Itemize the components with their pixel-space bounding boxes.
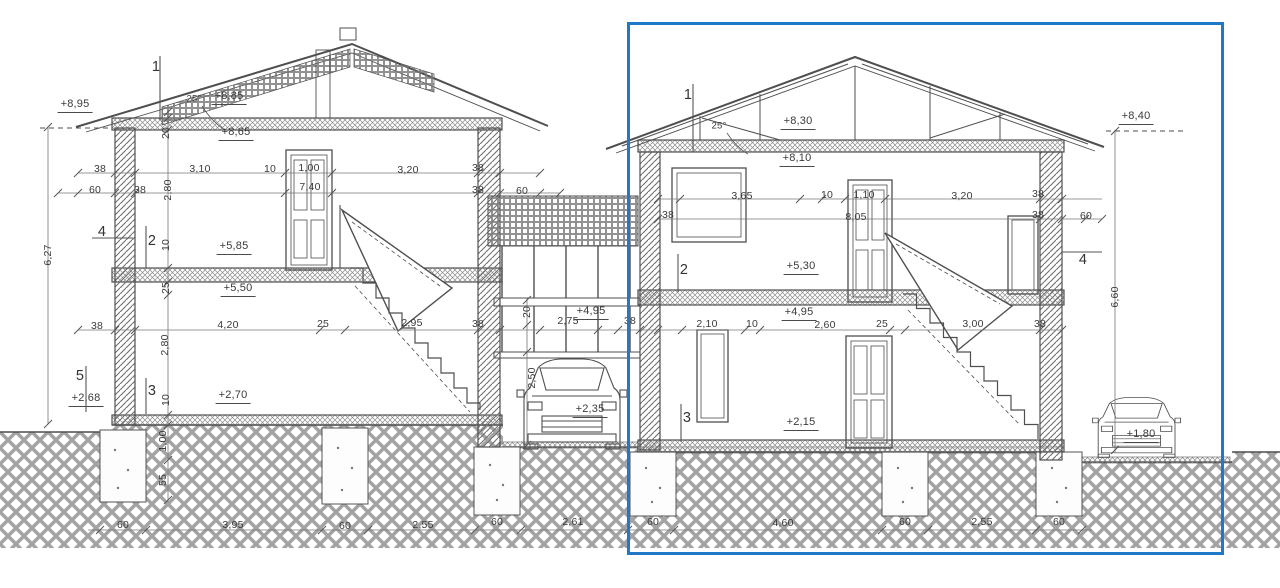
dimension-label: 3,95 [222, 520, 243, 531]
highlight-box [627, 22, 1224, 555]
dimension-label: 1,00 [298, 163, 319, 174]
section-marker: 3 [148, 384, 156, 399]
dimension-label-vertical: 1,00 [158, 430, 169, 451]
section-drawing: +8,95+8,85+8,65+5,85+5,50+2,70+2,68+4,95… [0, 0, 1280, 588]
dimension-label: 38 [472, 185, 484, 196]
dimension-label-vertical: 10 [161, 239, 172, 251]
section-marker: 2 [148, 234, 156, 249]
dimension-label-vertical: 20 [522, 306, 533, 318]
dimension-label: 25 [317, 319, 329, 330]
elevation-label: +2,68 [69, 393, 104, 407]
elevation-label: +5,85 [217, 241, 252, 255]
dimension-label: 38 [134, 185, 146, 196]
dimension-label-vertical: 25 [161, 282, 172, 294]
section-marker: 1 [152, 60, 160, 75]
section-marker: 5 [76, 369, 84, 384]
dimension-label: 2,75 [557, 316, 578, 327]
dimension-label-vertical: 2,80 [160, 334, 171, 355]
dimension-label: 2,61 [562, 517, 583, 528]
section-marker: 4 [98, 225, 106, 240]
elevation-label: +8,65 [219, 127, 254, 141]
dimension-label: 60 [89, 185, 101, 196]
dimension-label-vertical: 55 [158, 474, 169, 486]
dimension-label-vertical: 10 [161, 394, 172, 406]
dimension-label: 7,40 [299, 182, 320, 193]
dimension-label: 4,20 [217, 320, 238, 331]
dimension-label: 2,95 [401, 318, 422, 329]
dimension-label: 2,55 [412, 520, 433, 531]
elevation-label: +4,95 [574, 306, 609, 320]
dimension-label: 60 [117, 520, 129, 531]
elevation-label: +2,35 [573, 404, 608, 418]
dimension-label: 38 [91, 321, 103, 332]
dimension-label-vertical: 2,80 [163, 179, 174, 200]
dimension-label-vertical: 20 [161, 127, 172, 139]
dimension-label: 60 [491, 517, 503, 528]
elevation-label: +8,85 [212, 91, 247, 105]
dimension-label: 38 [94, 164, 106, 175]
dimension-label: 38 [472, 319, 484, 330]
dimension-label: 38 [472, 163, 484, 174]
dimension-label: 60 [339, 521, 351, 532]
dimension-label: 10 [264, 164, 276, 175]
elevation-label: +5,50 [221, 283, 256, 297]
dimension-label: 60 [516, 186, 528, 197]
dimension-label: 3,20 [397, 165, 418, 176]
dimension-label-vertical: 2,50 [527, 367, 538, 388]
elevation-label: +2,70 [216, 390, 251, 404]
roof-angle-label: 25° [187, 94, 202, 104]
elevation-label: +8,95 [58, 99, 93, 113]
dimension-label-vertical: 6,27 [43, 244, 54, 265]
dimension-label: 3,10 [189, 164, 210, 175]
